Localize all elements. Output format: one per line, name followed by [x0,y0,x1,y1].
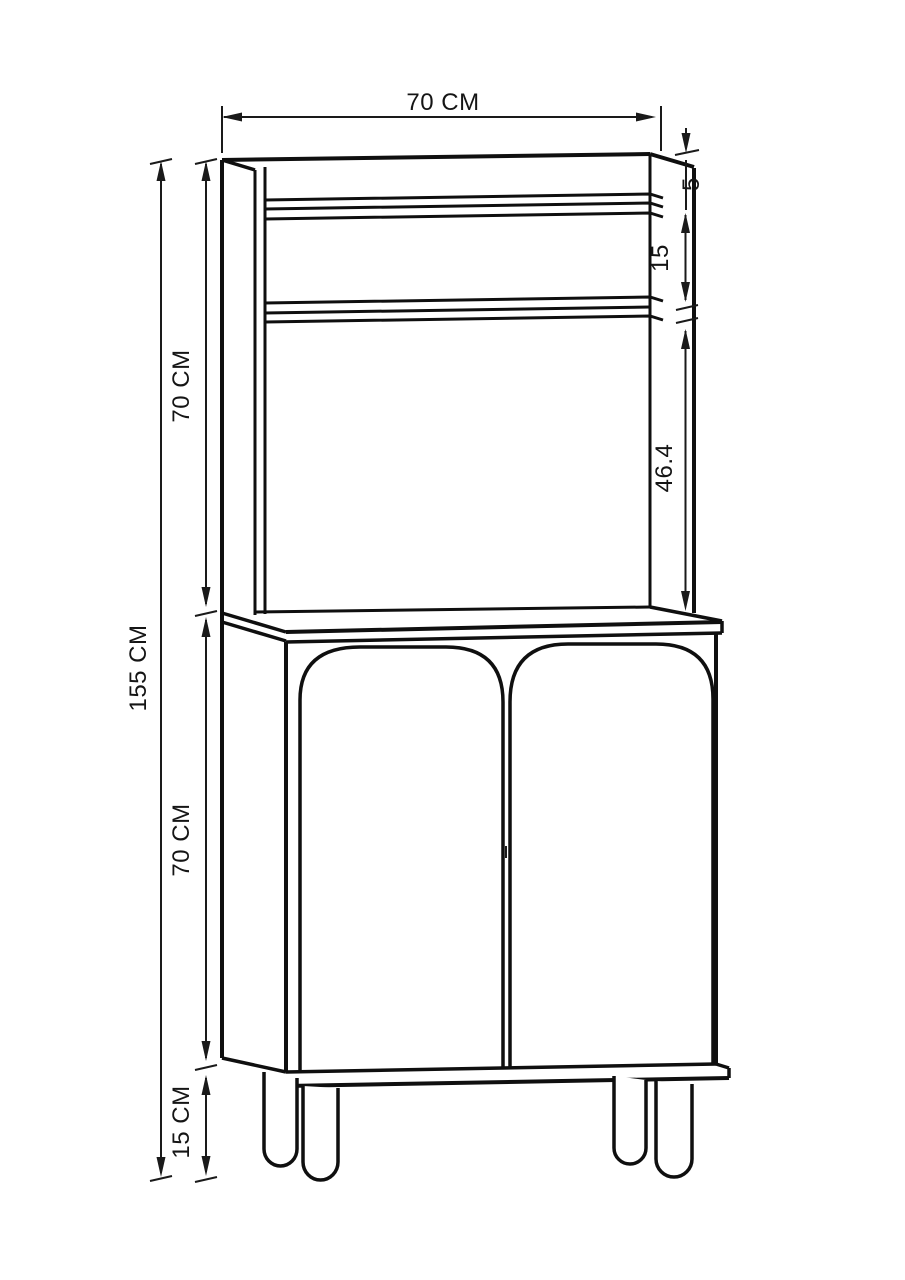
cabinet-bottom-left-edge [222,1058,286,1072]
furniture-technical-drawing: 70 CM 5 15 46.4 [0,0,905,1280]
right-door-outline[interactable] [510,644,713,1067]
cabinet-bottom-top-edge [286,1064,716,1072]
counter-right-depth-edge [650,607,722,621]
dimension-legs-height: 15 CM [168,1075,217,1182]
hutch-top-front-edge [222,154,650,160]
counter-back-edge [256,607,650,612]
dim-upper-height-label: 70 CM [168,349,195,422]
arrowhead-right [636,113,656,122]
back-right-leg [614,1076,646,1164]
hutch-shelf-1-top-edge [265,203,663,209]
dimension-upper-height: 70 CM [168,159,217,616]
technical-drawing-page: 70 CM 5 15 46.4 [0,0,905,1280]
arrowhead-up [681,329,690,349]
hutch-shelf-1-bottom-edge [265,213,663,219]
dim-legs-height-label: 15 CM [168,1085,195,1158]
dim-top-thickness-label: 5 [678,177,705,191]
arrowhead-up [202,617,211,637]
tick-mark [195,611,217,616]
counter-left-top-edge [222,613,286,632]
hutch-shelf-2-front-top-edge [265,307,650,313]
dimension-top-width: 70 CM [222,89,661,153]
tick-mark [195,1177,217,1182]
arrowhead-down [202,1041,211,1061]
hutch-top-box-bottom-edge [265,194,663,200]
arrowhead-down [157,1157,166,1177]
left-door-outline[interactable] [300,647,503,1070]
arrowhead-up [157,161,166,181]
counter-front-bottom-edge [286,633,722,642]
dimension-total-height: 155 CM [125,159,172,1181]
tick-mark [195,1065,217,1070]
cabinet-structure [222,607,729,1086]
back-left-leg [264,1072,297,1166]
arrowhead-left [222,113,242,122]
hutch-shelf-2-front-bottom-edge [265,316,663,322]
cabinet-bottom-right-depth-edge [716,1064,729,1068]
arrowhead-down [681,591,690,611]
dim-shelf-to-counter-label: 46.4 [651,444,678,493]
dimension-lower-height: 70 CM [168,617,217,1070]
dim-total-height-label: 155 CM [125,624,152,711]
counter-left-bottom-edge [222,622,286,641]
dimension-shelf-to-counter: 46.4 [651,329,690,611]
arrowhead-down [202,1156,211,1176]
tick-mark [675,150,699,155]
dim-lower-height-label: 70 CM [168,803,195,876]
cabinet-legs [264,1072,692,1180]
counter-front-top-edge [286,622,722,632]
hutch-shelf-2-back-edge [265,297,663,303]
arrowhead-down [202,587,211,607]
dimension-top-thickness: 5 [675,128,705,210]
dim-shelf-spacing-label: 15 [647,244,674,272]
dim-top-width-label: 70 CM [406,89,479,116]
hutch-right-panel-top-edge [650,154,694,167]
front-left-leg [303,1086,338,1180]
arrowhead-down [682,133,691,153]
arrowhead-up [681,213,690,233]
dimension-shelf-spacing: 15 [647,213,698,323]
arrowhead-down [681,282,690,302]
cabinet-doors [300,644,713,1070]
arrowhead-up [202,1075,211,1095]
front-right-leg [656,1081,692,1177]
arrowhead-up [202,161,211,181]
